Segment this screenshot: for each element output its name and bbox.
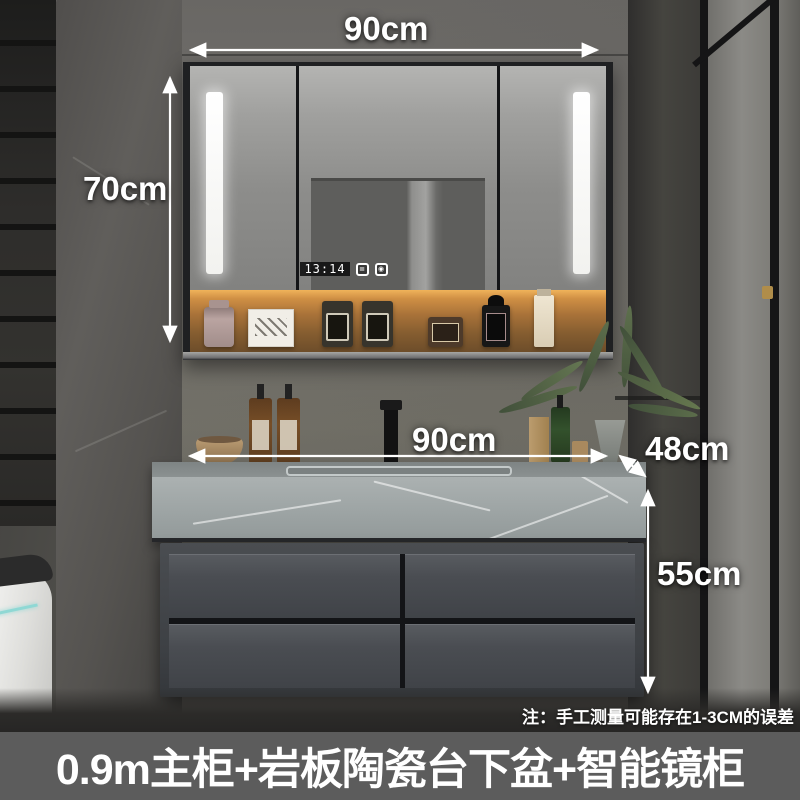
stone-vein bbox=[486, 495, 609, 541]
mirror-door-left bbox=[190, 66, 296, 290]
shower-glass-wall bbox=[706, 0, 800, 736]
dim-label-mirror-height: 70cm bbox=[83, 172, 167, 205]
soap-dispenser bbox=[277, 398, 300, 464]
dim-label-mirror-width: 90cm bbox=[344, 12, 428, 45]
stone-vein bbox=[193, 499, 341, 524]
mirror-door-center bbox=[299, 66, 497, 290]
drawer-grid bbox=[169, 554, 635, 688]
led-light-strip-right bbox=[573, 92, 590, 274]
soap-dispenser bbox=[249, 398, 272, 464]
shower-frame bbox=[770, 0, 779, 736]
dim-label-vanity-height: 55cm bbox=[657, 557, 741, 590]
light-control-icon: ◉ bbox=[375, 263, 388, 276]
clock-display: 13:14 bbox=[300, 262, 349, 276]
stone-vein bbox=[576, 477, 629, 504]
mirror-display: 13:14 ≣ ◉ bbox=[183, 262, 505, 276]
vanity-cabinet bbox=[160, 543, 644, 697]
smart-mirror-cabinet: 13:14 ≣ ◉ bbox=[183, 62, 613, 360]
counter-front-face bbox=[152, 477, 646, 542]
dim-label-vanity-width: 90cm bbox=[412, 423, 496, 456]
tile-seam bbox=[182, 54, 628, 56]
defog-icon: ≣ bbox=[356, 263, 369, 276]
shower-frame bbox=[700, 0, 708, 736]
drawer-front bbox=[405, 554, 636, 618]
marble-vein bbox=[75, 410, 167, 453]
towel-rack bbox=[0, 0, 56, 526]
stone-countertop bbox=[152, 462, 646, 542]
black-faucet bbox=[384, 404, 398, 464]
shelf-bottom-panel bbox=[183, 352, 613, 360]
led-light-strip-left bbox=[206, 92, 223, 274]
counter-surface bbox=[152, 462, 646, 477]
glass-clamp bbox=[762, 286, 773, 299]
measurement-note: 注：手工测量可能存在1-3CM的误差 bbox=[522, 703, 794, 728]
product-title: 0.9m主柜+岩板陶瓷台下盆+智能镜柜 bbox=[56, 735, 744, 797]
stone-vein bbox=[374, 481, 491, 512]
shelf-item-jar bbox=[428, 317, 463, 347]
wood-cup bbox=[572, 441, 588, 463]
mirror-door-right bbox=[500, 66, 606, 290]
drawer-front bbox=[169, 624, 400, 688]
shelf-item-jar bbox=[362, 301, 393, 347]
backlit-shelf bbox=[190, 290, 606, 352]
undermount-sink bbox=[286, 466, 512, 476]
shelf-item-bottle bbox=[534, 295, 554, 347]
dim-label-counter-depth: 48cm bbox=[645, 432, 729, 465]
shelf-item-jar bbox=[204, 307, 234, 347]
product-photo: 13:14 ≣ ◉ bbox=[0, 0, 800, 800]
drawer-front bbox=[405, 624, 636, 688]
green-soap-bottle bbox=[551, 407, 570, 463]
mirror-doors bbox=[190, 66, 606, 290]
wood-tray bbox=[529, 417, 549, 463]
shelf-item-box bbox=[248, 309, 294, 347]
product-title-banner: 0.9m主柜+岩板陶瓷台下盆+智能镜柜 bbox=[0, 732, 800, 800]
drawer-front bbox=[169, 554, 400, 618]
shelf-item-jar bbox=[322, 301, 353, 347]
shelf-item-perfume bbox=[482, 305, 510, 347]
